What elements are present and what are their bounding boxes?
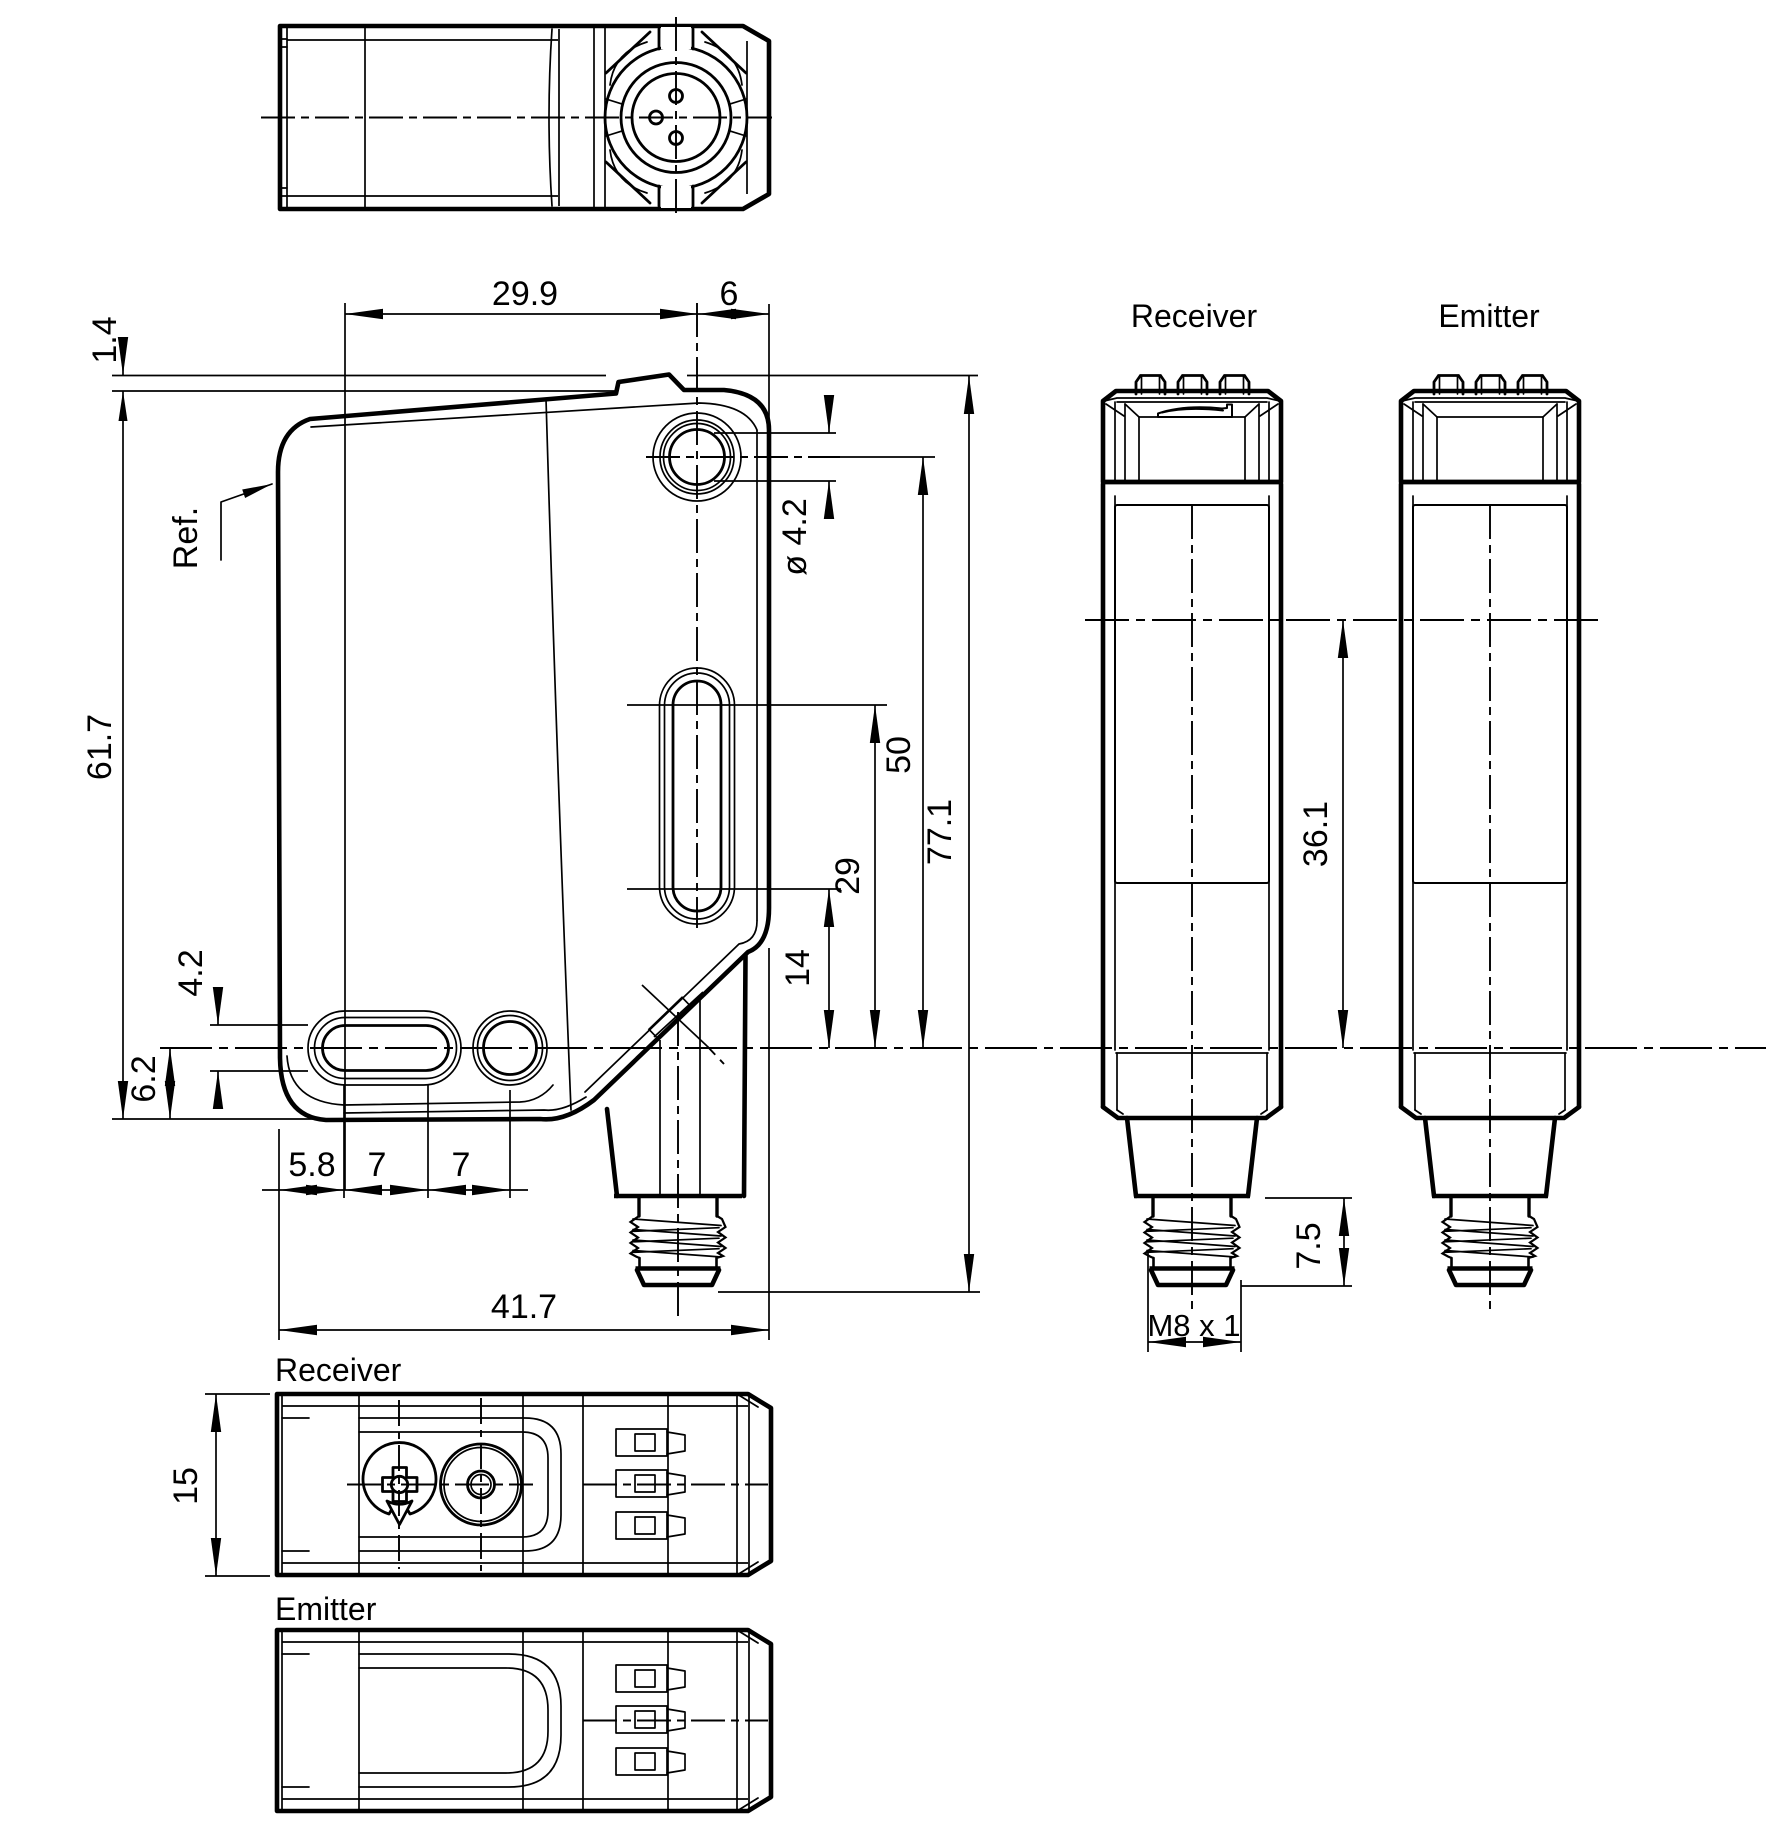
svg-text:Emitter: Emitter — [275, 1591, 377, 1627]
svg-text:14: 14 — [779, 949, 817, 987]
svg-text:M8 x 1: M8 x 1 — [1147, 1308, 1240, 1343]
svg-text:Receiver: Receiver — [1131, 298, 1258, 334]
svg-text:61.7: 61.7 — [81, 714, 119, 780]
svg-text:5.8: 5.8 — [288, 1146, 335, 1184]
svg-text:4.2: 4.2 — [172, 949, 210, 996]
svg-text:1.4: 1.4 — [86, 316, 124, 363]
svg-text:7: 7 — [368, 1146, 387, 1184]
svg-text:41.7: 41.7 — [491, 1288, 557, 1326]
svg-text:Ref.: Ref. — [167, 507, 205, 569]
svg-text:6: 6 — [720, 275, 739, 313]
svg-text:Emitter: Emitter — [1438, 298, 1540, 334]
svg-text:15: 15 — [167, 1467, 205, 1505]
svg-text:6.2: 6.2 — [125, 1055, 163, 1102]
svg-text:36.1: 36.1 — [1297, 801, 1335, 867]
svg-text:ø 4.2: ø 4.2 — [776, 498, 814, 575]
svg-text:7: 7 — [452, 1146, 471, 1184]
svg-text:50: 50 — [880, 736, 918, 774]
svg-text:Receiver: Receiver — [275, 1352, 402, 1388]
svg-text:29.9: 29.9 — [492, 275, 558, 313]
svg-text:7.5: 7.5 — [1290, 1222, 1328, 1269]
svg-text:77.1: 77.1 — [921, 799, 959, 865]
